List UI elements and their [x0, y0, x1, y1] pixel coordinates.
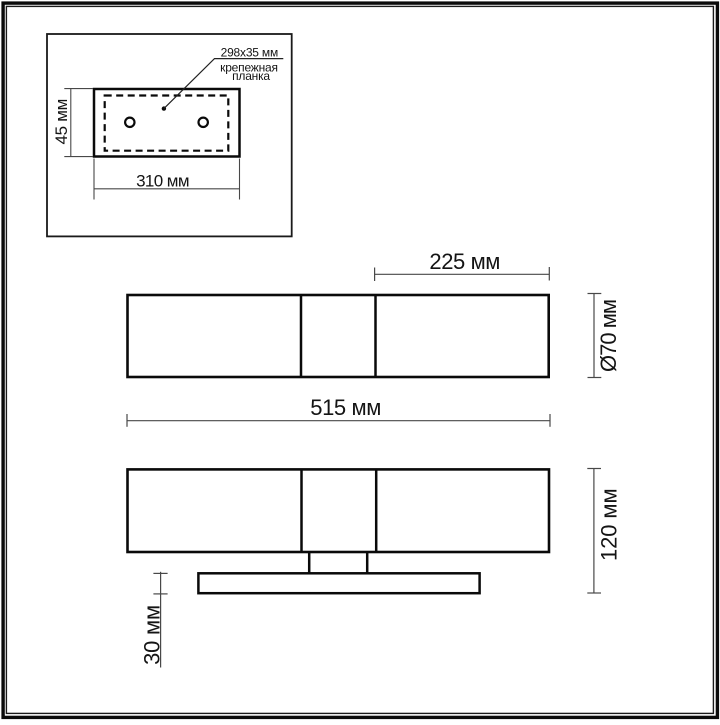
- svg-text:515 мм: 515 мм: [310, 395, 381, 420]
- svg-text:30 мм: 30 мм: [140, 605, 165, 665]
- svg-text:планка: планка: [232, 69, 270, 83]
- svg-text:225 мм: 225 мм: [429, 249, 500, 274]
- svg-text:Ø70 мм: Ø70 мм: [596, 300, 621, 372]
- svg-text:310 мм: 310 мм: [136, 172, 189, 191]
- svg-text:298x35 мм: 298x35 мм: [221, 45, 278, 59]
- svg-text:120 мм: 120 мм: [597, 489, 622, 561]
- svg-text:45 мм: 45 мм: [52, 99, 71, 145]
